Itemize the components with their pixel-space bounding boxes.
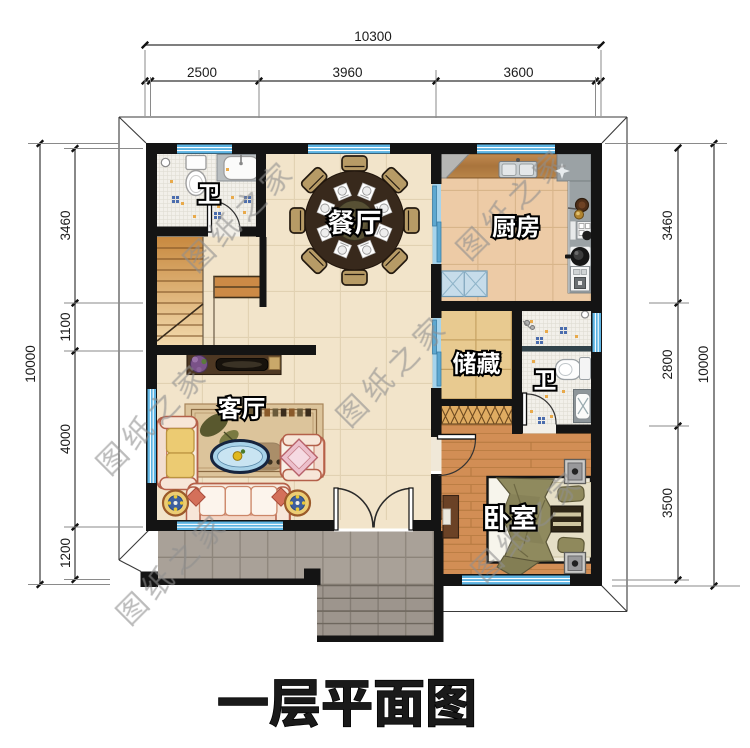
svg-text:4000: 4000 xyxy=(58,424,73,454)
svg-text:3600: 3600 xyxy=(503,65,533,80)
svg-text:2500: 2500 xyxy=(187,65,217,80)
svg-text:3460: 3460 xyxy=(660,210,675,240)
svg-text:3500: 3500 xyxy=(660,488,675,518)
svg-text:1200: 1200 xyxy=(58,538,73,568)
svg-text:10300: 10300 xyxy=(354,29,392,44)
svg-text:10000: 10000 xyxy=(23,345,38,383)
svg-text:3960: 3960 xyxy=(332,65,362,80)
svg-text:2800: 2800 xyxy=(660,349,675,379)
svg-text:10000: 10000 xyxy=(696,346,711,384)
svg-text:3460: 3460 xyxy=(58,210,73,240)
svg-text:1100: 1100 xyxy=(58,312,73,341)
